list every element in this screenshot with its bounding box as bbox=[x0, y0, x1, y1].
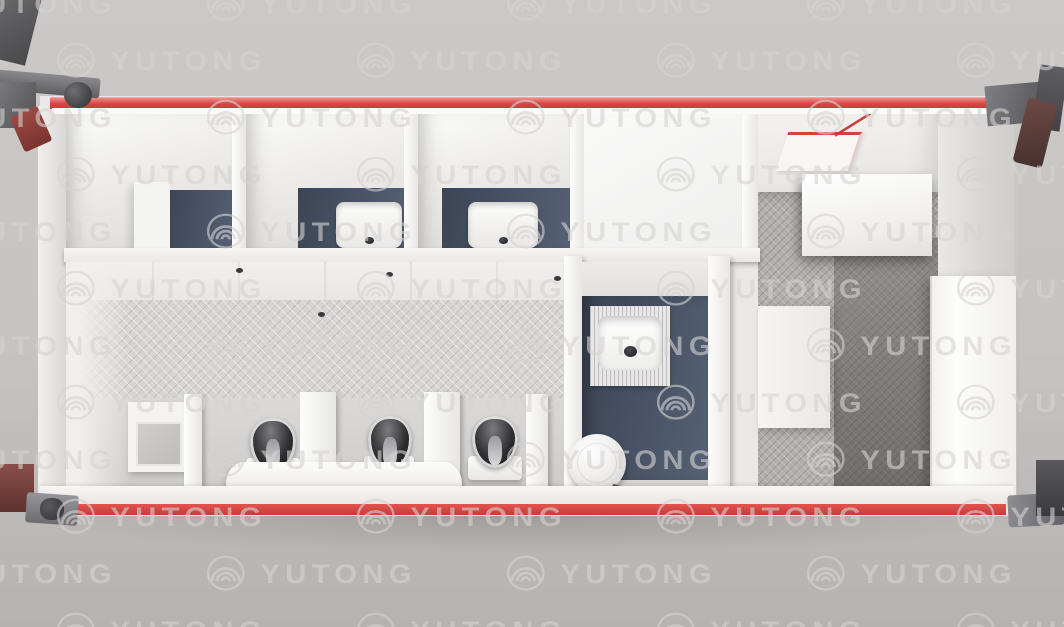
watermark-tile: YUTONG bbox=[52, 611, 267, 627]
watermark-tile: YUTONG bbox=[202, 554, 417, 594]
watermark-text: YUTONG bbox=[0, 559, 117, 590]
wash-basin bbox=[336, 202, 402, 248]
container-bottom-red-trim bbox=[50, 504, 1006, 515]
watermark-tile: YUTONG bbox=[802, 554, 1017, 594]
watermark-tile: YUTONG bbox=[52, 41, 267, 81]
watermark-text: YUTONG bbox=[260, 559, 417, 590]
watermark-text: YUTONG bbox=[1010, 388, 1064, 419]
watermark-text: YUTONG bbox=[560, 0, 717, 20]
watermark-text: YUTONG bbox=[410, 616, 567, 627]
concentric-arcs-brand-icon bbox=[352, 611, 400, 627]
wet-room-right-wall bbox=[708, 256, 730, 492]
white-room-floor bbox=[584, 114, 742, 250]
twist-lock-knob bbox=[40, 498, 64, 520]
concentric-arcs-brand-icon bbox=[952, 611, 1000, 627]
partition-panel bbox=[758, 306, 830, 428]
squat-toilet bbox=[598, 316, 662, 370]
mirror bbox=[136, 422, 182, 466]
watermark-tile: YUTONG bbox=[652, 41, 867, 81]
stall-wall-c bbox=[570, 110, 584, 252]
watermark-text: YUTONG bbox=[1010, 274, 1064, 305]
stall-1-navy-tile bbox=[166, 190, 234, 250]
concentric-arcs-brand-icon bbox=[202, 554, 250, 594]
wall-hook-icon bbox=[236, 268, 243, 273]
watermark-tile: YUTONG bbox=[502, 554, 717, 594]
toilet-lid-ring bbox=[577, 443, 617, 483]
watermark-text: YUTONG bbox=[710, 46, 867, 77]
mid-partition-wall bbox=[64, 248, 760, 262]
wall-hook-icon bbox=[386, 272, 393, 277]
watermark-tile: YUTONG bbox=[802, 0, 1017, 24]
main-room-mosaic-wall bbox=[66, 300, 566, 402]
stall-1-fixture bbox=[134, 182, 170, 250]
watermark-tile: YUTONG bbox=[502, 0, 717, 24]
concentric-arcs-brand-icon bbox=[52, 611, 100, 627]
stall-wall-a bbox=[232, 110, 246, 252]
watermark-tile: YUTONG bbox=[352, 41, 567, 81]
watermark-tile: YUTONG bbox=[352, 611, 567, 627]
tall-cabinet bbox=[930, 276, 1016, 496]
concentric-arcs-brand-icon bbox=[652, 611, 700, 627]
watermark-text: YUTONG bbox=[110, 616, 267, 627]
watermark-tile: YUTONG bbox=[952, 611, 1064, 627]
corner-casting-block bbox=[1036, 460, 1064, 516]
container-top-wall bbox=[52, 108, 1006, 114]
utility-floor-shadow bbox=[834, 238, 940, 490]
privacy-divider bbox=[526, 394, 548, 490]
urinal-flush-channel bbox=[488, 436, 502, 465]
privacy-divider bbox=[184, 394, 202, 492]
stall-wall-d bbox=[742, 110, 758, 258]
toilet bbox=[568, 434, 626, 492]
wall-hook-icon bbox=[554, 276, 561, 281]
basin-drain-icon bbox=[365, 237, 374, 244]
watermark-tile: YUTONG bbox=[652, 611, 867, 627]
floorplan-render-scene: YUTONGYUTONGYUTONGYUTONGYUTONGYUTONGYUTO… bbox=[0, 0, 1064, 627]
ceiling-hatch bbox=[776, 132, 863, 171]
watermark-text: YUTONG bbox=[260, 0, 417, 20]
watermark-text: YUTONG bbox=[710, 616, 867, 627]
container-bottom-wall bbox=[40, 486, 1014, 506]
wash-basin bbox=[468, 202, 538, 248]
concentric-arcs-brand-icon bbox=[352, 41, 400, 81]
main-room-left-wall bbox=[66, 262, 130, 490]
vanity-unit bbox=[128, 402, 188, 472]
concentric-arcs-brand-icon bbox=[202, 0, 250, 24]
twist-lock-knob bbox=[64, 82, 92, 108]
concentric-arcs-brand-icon bbox=[802, 554, 850, 594]
watermark-text: YUTONG bbox=[110, 46, 267, 77]
watermark-text: YUTONG bbox=[1010, 616, 1064, 627]
concentric-arcs-brand-icon bbox=[952, 41, 1000, 81]
concentric-arcs-brand-icon bbox=[502, 0, 550, 24]
stall-wall-b bbox=[404, 110, 418, 252]
cabinet bbox=[802, 174, 932, 256]
concentric-arcs-brand-icon bbox=[802, 0, 850, 24]
wall-hook-icon bbox=[318, 312, 325, 317]
basin-drain-icon bbox=[499, 237, 508, 244]
concentric-arcs-brand-icon bbox=[652, 41, 700, 81]
squat-toilet-drain-icon bbox=[624, 346, 637, 357]
watermark-text: YUTONG bbox=[410, 46, 567, 77]
watermark-text: YUTONG bbox=[860, 0, 1017, 20]
watermark-tile: YUTONG bbox=[202, 0, 417, 24]
watermark-text: YUTONG bbox=[860, 559, 1017, 590]
corner-casting-top-left bbox=[0, 0, 42, 66]
container-left-wall bbox=[38, 106, 66, 516]
watermark-tile: YUTONG bbox=[0, 554, 117, 594]
watermark-text: YUTONG bbox=[560, 559, 717, 590]
concentric-arcs-brand-icon bbox=[502, 554, 550, 594]
